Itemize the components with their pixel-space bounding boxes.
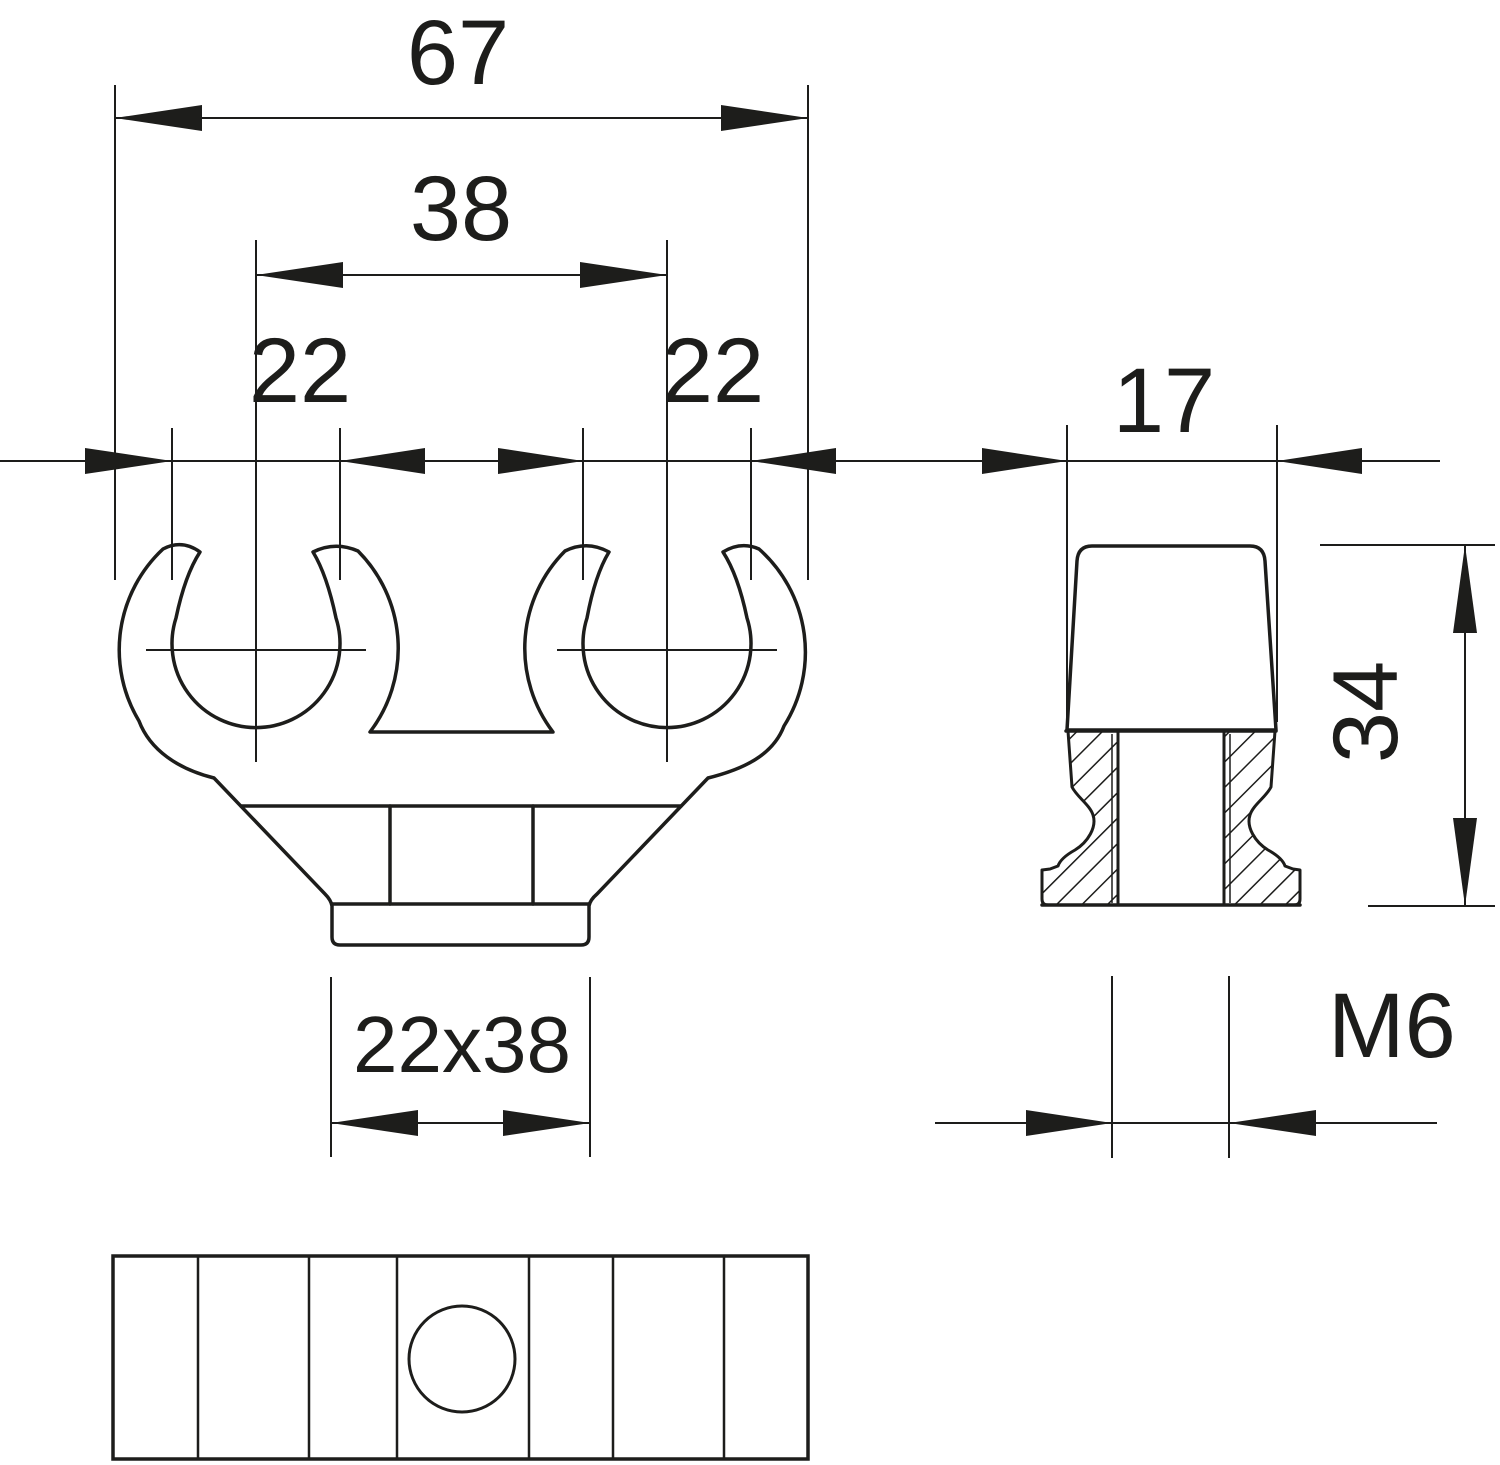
- dimension-thread: M6: [935, 975, 1456, 1158]
- bottom-view: [113, 1256, 808, 1459]
- arrowhead-left-icon: [340, 448, 425, 474]
- side-view: [1042, 546, 1300, 905]
- dimension-center-distance: 38: [256, 158, 667, 288]
- arrowhead-right-icon: [982, 448, 1067, 474]
- technical-drawing: 67 38 22 22 17: [0, 0, 1500, 1465]
- arrowhead-left-icon: [115, 105, 202, 131]
- technical-drawing-page: 67 38 22 22 17: [0, 0, 1500, 1465]
- dimension-value-overall-width: 67: [407, 2, 509, 104]
- dimension-value-thread: M6: [1328, 975, 1456, 1077]
- arrowhead-right-icon: [580, 262, 667, 288]
- front-view-clip-outline: [119, 545, 805, 945]
- side-view-cap-outline: [1067, 546, 1276, 730]
- dimension-height: 34: [1315, 545, 1495, 906]
- dimension-row-bores: 22 22 17: [0, 320, 1440, 727]
- side-view-section-right-wall: [1224, 731, 1300, 905]
- dimension-overall-width: 67: [115, 2, 808, 580]
- bottom-view-thread-hole: [409, 1306, 515, 1412]
- arrowhead-right-icon: [721, 105, 808, 131]
- front-view-centerlines: [146, 240, 777, 762]
- dimension-value-height: 34: [1315, 661, 1417, 763]
- dimension-foot-size: 22x38: [331, 977, 590, 1157]
- dimension-value-foot-size: 22x38: [353, 1000, 571, 1089]
- arrowhead-left-icon: [331, 1110, 418, 1136]
- arrowhead-left-icon: [751, 448, 836, 474]
- dimension-value-right-bore: 22: [662, 320, 764, 422]
- arrowhead-right-icon: [85, 448, 172, 474]
- arrowhead-right-icon: [498, 448, 583, 474]
- arrowhead-left-icon: [1229, 1110, 1316, 1136]
- arrowhead-down-icon: [1453, 818, 1477, 906]
- arrowhead-left-icon: [1277, 448, 1362, 474]
- arrowhead-right-icon: [1026, 1110, 1112, 1136]
- bottom-view-outline: [113, 1256, 808, 1459]
- arrowhead-right-icon: [503, 1110, 590, 1136]
- side-view-section-left-wall: [1042, 731, 1118, 905]
- dimension-value-left-bore: 22: [249, 320, 351, 422]
- dimension-value-top-width: 17: [1113, 350, 1215, 452]
- arrowhead-left-icon: [256, 262, 343, 288]
- dimension-value-center-distance: 38: [410, 158, 512, 260]
- arrowhead-up-icon: [1453, 545, 1477, 633]
